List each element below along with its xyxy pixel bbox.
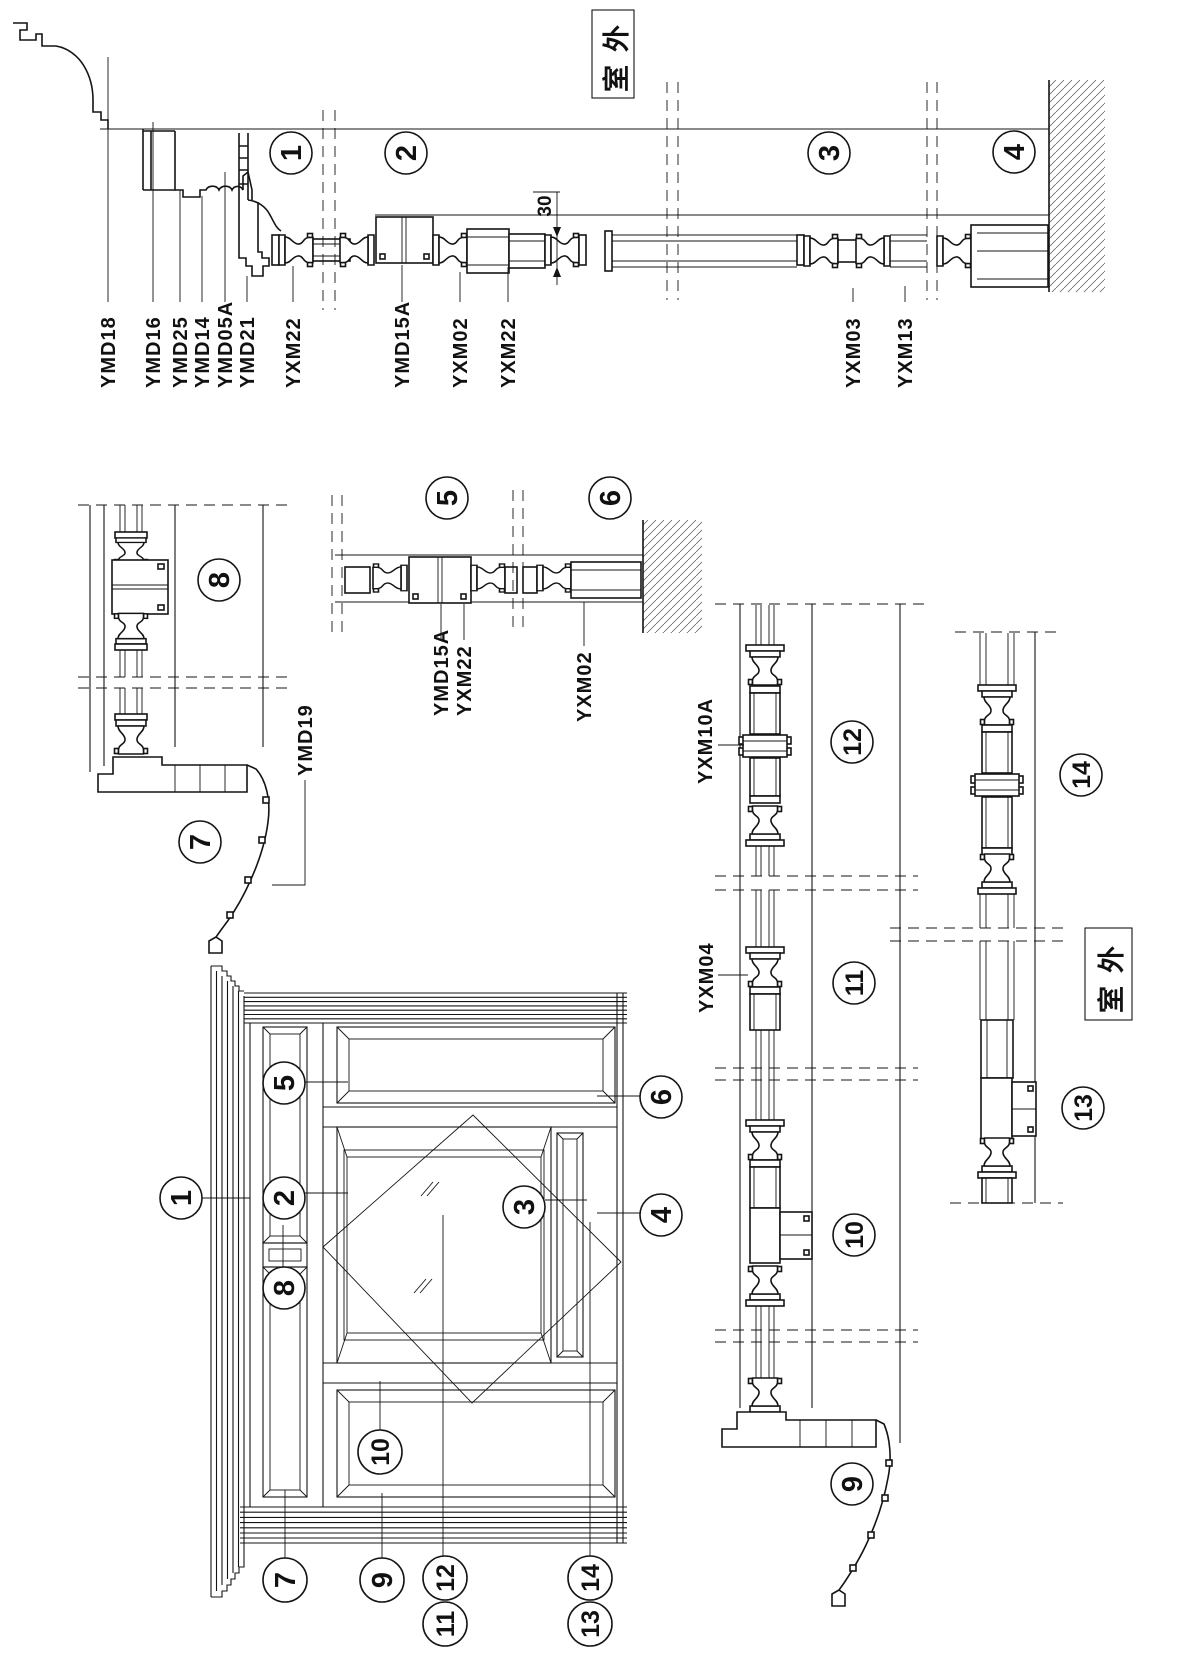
svg-text:12: 12: [432, 1564, 460, 1592]
svg-text:6: 6: [646, 1089, 678, 1105]
part-label-ymd14: YMD14: [192, 316, 214, 388]
part-label-yxm10a: YXM10A: [695, 698, 717, 784]
svg-text:7: 7: [185, 834, 217, 850]
svg-text:10: 10: [367, 1438, 395, 1466]
callout-13-elev: 13: [568, 1602, 612, 1646]
svg-text:10: 10: [841, 1221, 869, 1249]
part-label-yxm22-top: YXM22: [498, 317, 520, 388]
callout-4-elev: 4: [640, 1194, 682, 1236]
part-label-yxm03: YXM03: [843, 317, 865, 388]
callout-2-top: 2: [385, 132, 427, 174]
cad-detail-drawing: 30 室外 1 2 3 4 YMD18 YMD16 YMD25 YMD14 YM…: [0, 0, 1200, 1651]
svg-text:3: 3: [814, 145, 846, 161]
svg-text:14: 14: [1068, 761, 1096, 789]
svg-text:2: 2: [391, 145, 423, 161]
callout-14-strip: 14: [1060, 754, 1102, 796]
callout-8-col: 8: [198, 559, 240, 601]
svg-text:7: 7: [270, 1572, 302, 1588]
callout-5-mid: 5: [426, 477, 468, 519]
dimension-30-text: 30: [535, 195, 556, 216]
callout-6-mid: 6: [589, 477, 631, 519]
callout-5-elev: 5: [263, 1062, 305, 1104]
callout-11-elev: 11: [423, 1602, 467, 1646]
svg-text:5: 5: [432, 490, 464, 506]
part-label-yxm04: YXM04: [696, 942, 718, 1013]
svg-text:13: 13: [1070, 1094, 1098, 1122]
part-label-yxm22-mid: YXM22: [454, 645, 476, 716]
svg-text:11: 11: [432, 1611, 460, 1638]
svg-text:3: 3: [509, 1199, 541, 1215]
part-label-ymd21: YMD21: [237, 316, 259, 388]
wall-hatch-mid: [643, 520, 702, 633]
part-label-ymd18: YMD18: [98, 316, 120, 388]
svg-text:6: 6: [595, 490, 627, 506]
part-label-ymd25: YMD25: [170, 316, 192, 388]
callout-14-elev: 14: [568, 1556, 612, 1600]
svg-text:8: 8: [204, 572, 236, 588]
svg-text:4: 4: [646, 1207, 678, 1223]
part-label-ymd19: YMD19: [295, 704, 317, 776]
svg-text:2: 2: [269, 1190, 301, 1206]
callout-10-elev: 10: [358, 1430, 402, 1474]
callout-11-strip: 11: [833, 962, 875, 1004]
svg-text:9: 9: [367, 1572, 399, 1588]
part-label-yxm22-jamb: YXM22: [283, 317, 305, 388]
part-label-ymd15a-mid: YMD15A: [431, 629, 453, 716]
callout-8-elev: 8: [263, 1267, 305, 1309]
svg-text:1: 1: [276, 145, 308, 161]
callout-3-top: 3: [808, 132, 850, 174]
callout-12-elev: 12: [423, 1556, 467, 1600]
callout-7-col: 7: [179, 821, 221, 863]
callout-1-top: 1: [270, 132, 312, 174]
svg-text:11: 11: [841, 970, 869, 997]
callout-7-elev: 7: [263, 1558, 307, 1602]
part-label-ymd16: YMD16: [143, 316, 165, 388]
part-label-ymd05a: YMD05A: [215, 301, 237, 388]
callout-1-elev: 1: [160, 1177, 202, 1219]
svg-text:1: 1: [166, 1190, 198, 1206]
svg-text:12: 12: [839, 728, 867, 756]
callout-6-elev: 6: [640, 1076, 682, 1118]
callout-10-strip: 10: [833, 1214, 875, 1256]
yxm02-profile-mid: [571, 562, 641, 598]
yxm02-profile-top: [467, 229, 509, 273]
part-label-ymd15a-top: YMD15A: [392, 301, 414, 388]
wall-hatch-right: [1049, 80, 1105, 292]
callout-13-strip: 13: [1062, 1087, 1104, 1129]
outdoor-label-top: 室外: [601, 12, 632, 92]
outdoor-label-right: 室外: [1096, 933, 1127, 1013]
part-label-yxm02-mid: YXM02: [574, 651, 596, 722]
callout-3-elev: 3: [503, 1186, 545, 1228]
part-label-yxm02-top: YXM02: [450, 317, 472, 388]
glass-clamp-yxm10a: [739, 735, 791, 757]
callout-2-elev: 2: [263, 1177, 305, 1219]
svg-text:8: 8: [269, 1280, 301, 1296]
drawing-sheet: 30 室外 1 2 3 4 YMD18 YMD16 YMD25 YMD14 YM…: [0, 0, 1200, 1651]
part-label-yxm13: YXM13: [895, 317, 917, 388]
callout-12-strip: 12: [831, 721, 873, 763]
svg-text:9: 9: [837, 1476, 869, 1492]
callout-9-strip: 9: [831, 1463, 873, 1505]
callout-4-top: 4: [993, 131, 1035, 173]
svg-text:4: 4: [999, 144, 1031, 160]
callout-9-elev: 9: [360, 1558, 404, 1602]
svg-text:13: 13: [577, 1610, 605, 1638]
svg-text:14: 14: [577, 1564, 605, 1592]
svg-text:5: 5: [269, 1075, 301, 1091]
